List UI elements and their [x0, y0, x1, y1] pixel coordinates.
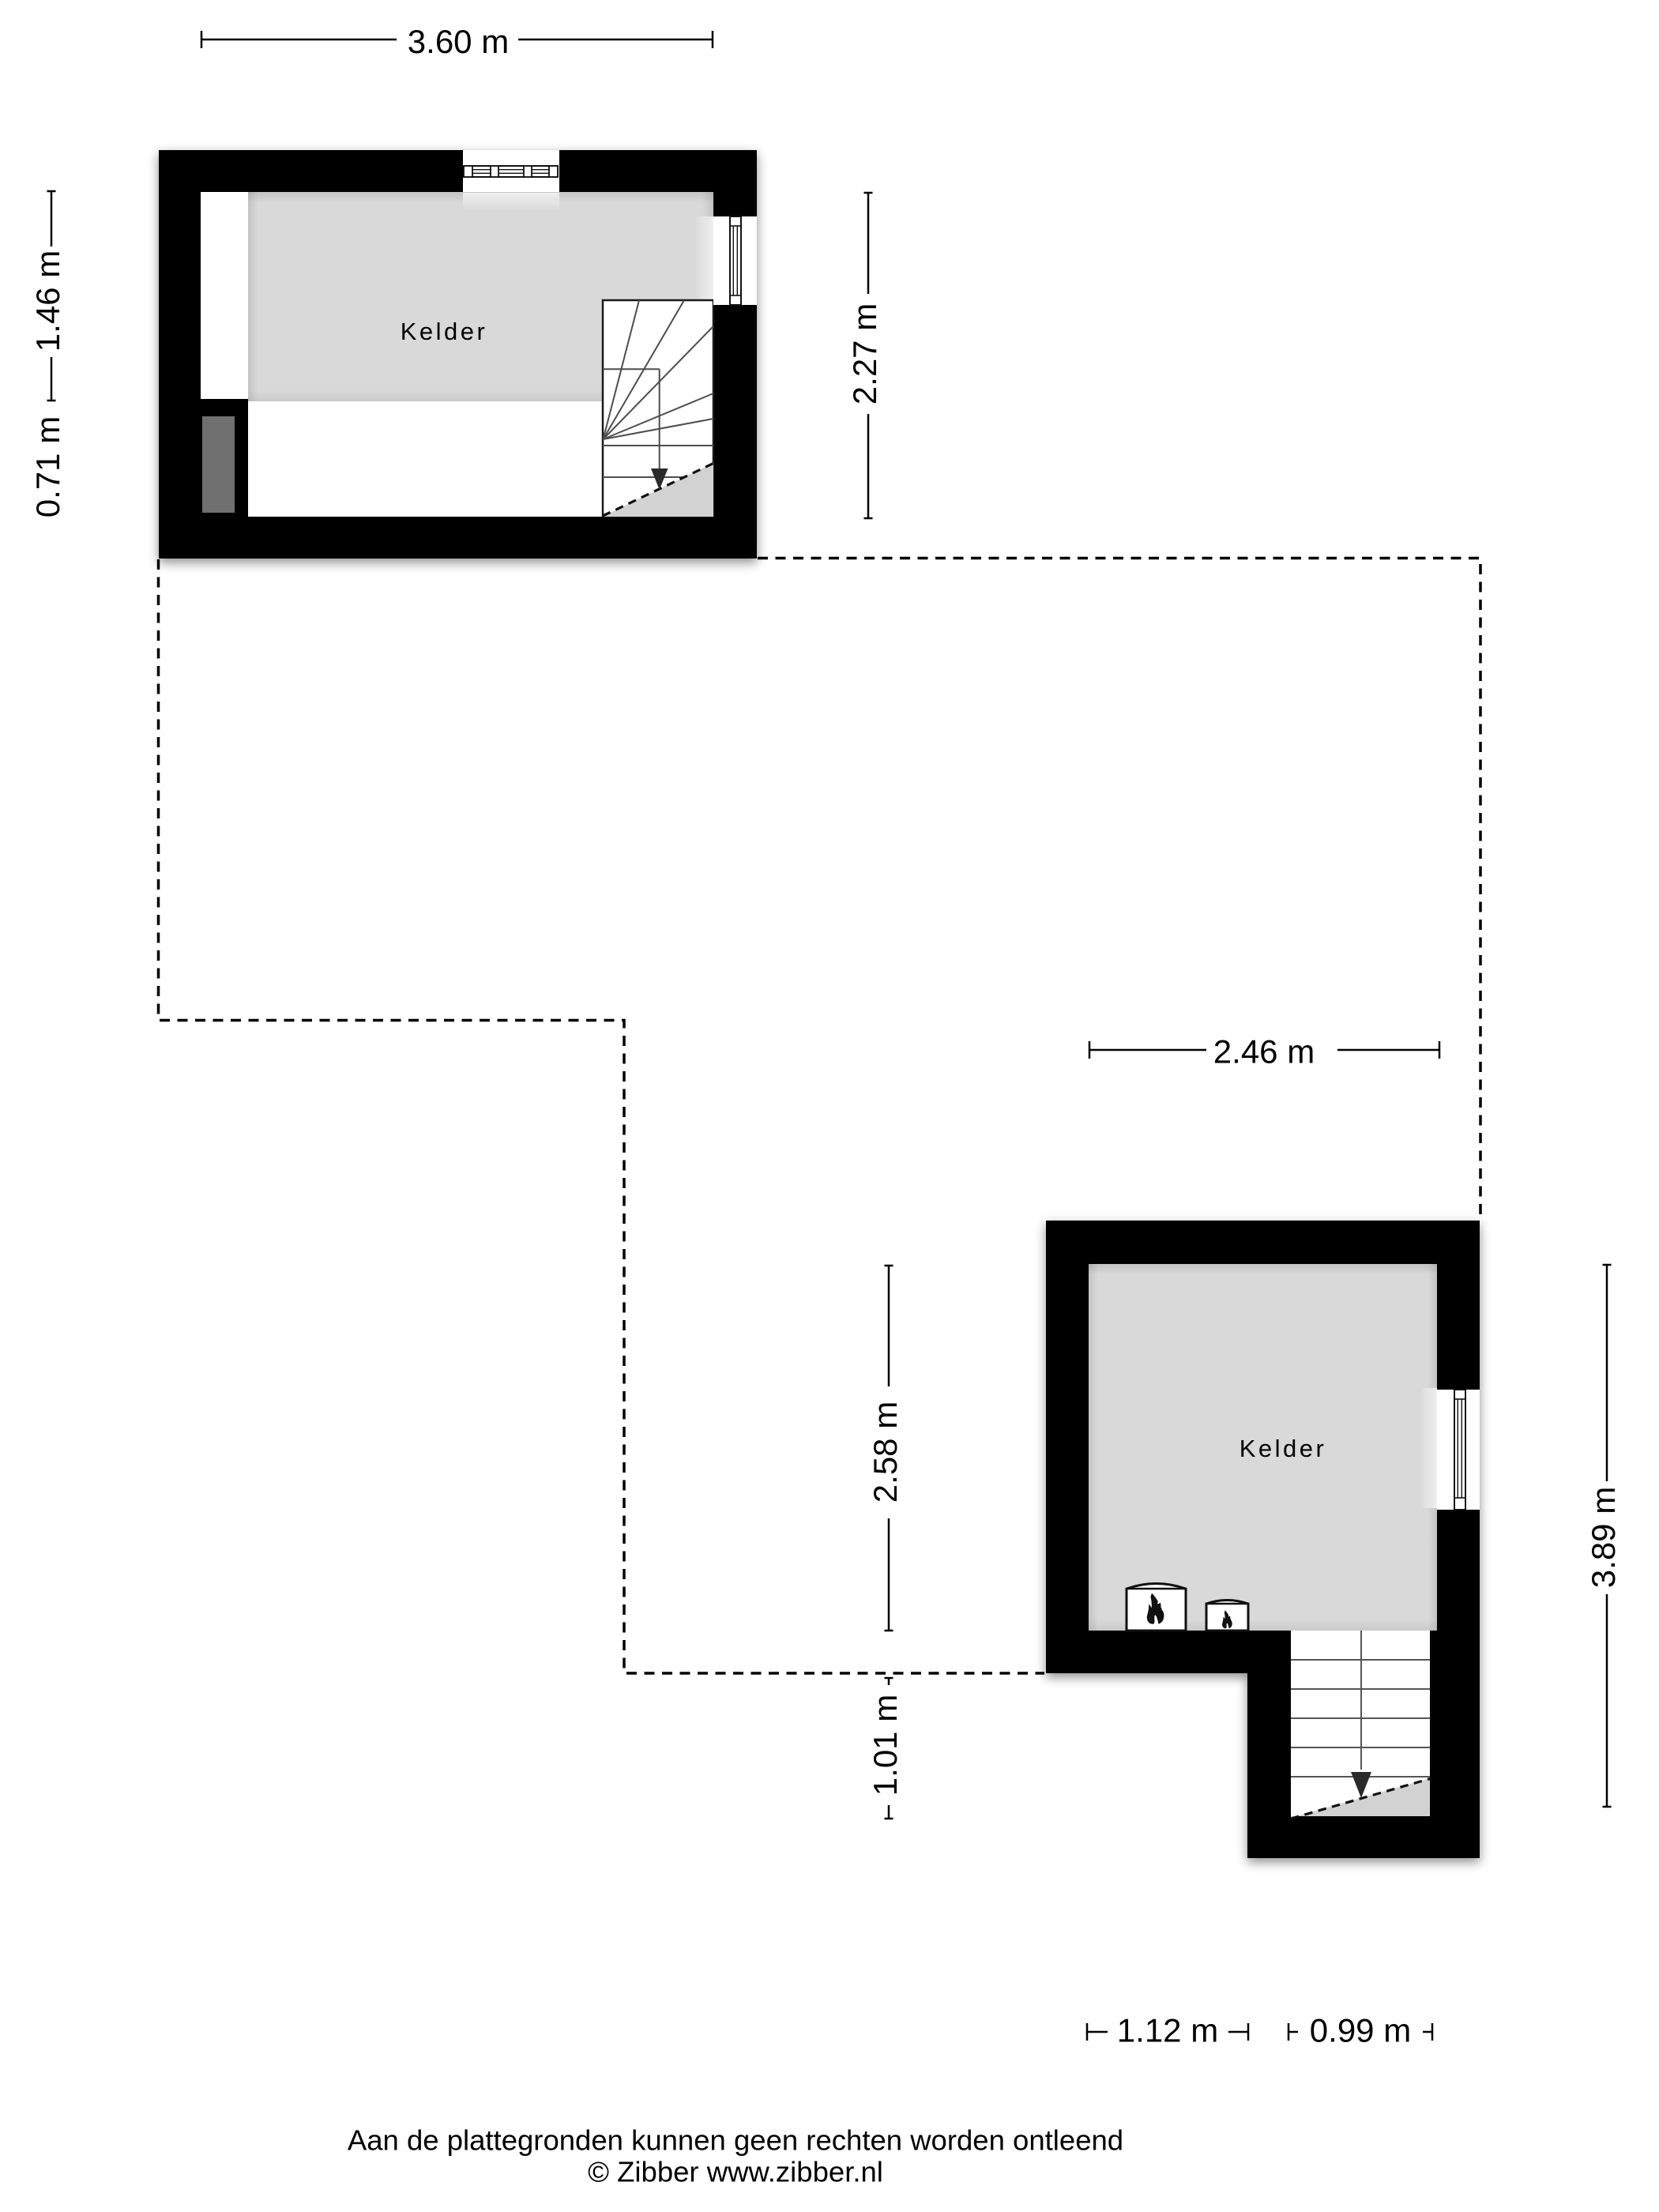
svg-text:1.01 m: 1.01 m [867, 1695, 904, 1796]
svg-text:0.99 m: 0.99 m [1310, 2012, 1411, 2049]
svg-text:1.12 m: 1.12 m [1117, 2012, 1218, 2049]
svg-text:0.71 m: 0.71 m [29, 416, 66, 517]
svg-text:2.46 m: 2.46 m [1213, 1033, 1315, 1070]
svg-text:Kelder: Kelder [1240, 1435, 1327, 1462]
svg-text:© Zibber www.zibber.nl: © Zibber www.zibber.nl [588, 2156, 883, 2188]
svg-text:Aan de plattegronden kunnen ge: Aan de plattegronden kunnen geen rechten… [348, 2124, 1123, 2157]
svg-text:3.89 m: 3.89 m [1585, 1487, 1622, 1588]
svg-text:Kelder: Kelder [401, 318, 488, 345]
svg-text:2.58 m: 2.58 m [867, 1401, 904, 1503]
svg-text:2.27 m: 2.27 m [846, 303, 883, 404]
svg-text:1.46 m: 1.46 m [29, 250, 66, 352]
svg-text:3.60 m: 3.60 m [408, 23, 509, 60]
